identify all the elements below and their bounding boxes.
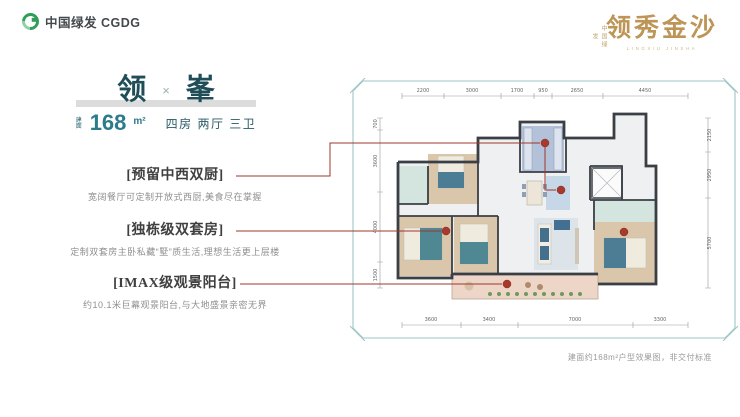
feature-kitchen-title: [预留中西双厨] xyxy=(30,168,320,183)
dim-label: 3000 xyxy=(466,88,479,94)
bed-blanket xyxy=(460,242,488,264)
dim-label: 1700 xyxy=(511,88,524,94)
bed-blanket xyxy=(420,228,442,260)
feature-kitchen-desc: 宽阔餐厅可定制开放式西厨,美食尽在掌握 xyxy=(30,190,320,203)
feature-balcony: [IMAX级观景阳台] 约10.1米巨幕观景阳台,与大地盛景亲密无界 xyxy=(30,276,320,311)
feature-balcony-title: [IMAX级观景阳台] xyxy=(30,276,320,291)
bed-blanket xyxy=(438,172,464,188)
dim-label: 4000 xyxy=(373,221,379,234)
cgdg-logo-icon xyxy=(19,10,43,34)
developer-logo-text: 中国绿发 CGDG xyxy=(45,12,140,31)
dim-label: 2200 xyxy=(417,88,430,94)
dim-label: 1500 xyxy=(373,269,379,282)
tv-console xyxy=(575,228,579,264)
feature-suites-desc: 定制双套房主卧私藏“墅”质生活,理想生活更上层楼 xyxy=(30,245,320,258)
dim-label: 3600 xyxy=(373,155,379,168)
lounge-chair xyxy=(554,220,570,230)
dim-label: 2650 xyxy=(571,88,584,94)
room-config: 四房 两厅 三卫 xyxy=(166,115,257,132)
dim-label: 5700 xyxy=(707,237,713,250)
area-unit: m² xyxy=(133,116,145,127)
page: { "header": { "logo_text": "中国绿发 CGDG", … xyxy=(0,0,740,417)
dim-label: 2150 xyxy=(707,129,713,142)
bathroom-topleft xyxy=(398,166,428,204)
feature-suites: [独栋级双套房] 定制双套房主卧私藏“墅”质生活,理想生活更上层楼 xyxy=(30,223,320,258)
bed-blanket xyxy=(604,238,626,268)
feature-suites-title: [独栋级双套房] xyxy=(30,223,320,238)
dim-label: 4450 xyxy=(639,88,652,94)
unit-title: 领 × 峯 xyxy=(56,76,276,105)
dining-table xyxy=(527,181,542,205)
kitchen-counter xyxy=(554,128,562,170)
floor-plan: 2200 3000 1700 950 2650 4450 3600 3400 7… xyxy=(350,78,738,341)
unit-title-right: 峯 xyxy=(186,76,215,105)
dim-label: 2950 xyxy=(707,169,713,182)
unit-title-separator: × xyxy=(162,83,170,98)
developer-logo: 中国绿发 CGDG xyxy=(22,12,140,31)
dim-label: 7000 xyxy=(569,317,582,323)
dim-label: 3600 xyxy=(425,317,438,323)
dim-label: 700 xyxy=(373,119,379,129)
dim-label: 950 xyxy=(538,88,548,94)
dim-label: 3300 xyxy=(654,317,667,323)
dining-rug xyxy=(546,176,570,210)
unit-title-left: 领 xyxy=(117,76,146,105)
feature-balcony-desc: 约10.1米巨幕观景阳台,与大地盛景亲密无界 xyxy=(30,298,320,311)
feature-kitchen: [预留中西双厨] 宽阔餐厅可定制开放式西厨,美食尽在掌握 xyxy=(30,168,320,203)
area-value: 168 xyxy=(90,112,127,134)
kitchen-counter xyxy=(524,128,532,170)
disclaimer-text: 建面约168m²户型效果图，非交付标准 xyxy=(568,352,712,363)
unit-spec-row: 建面 168 m² 四房 两厅 三卫 xyxy=(46,112,286,134)
balcony-table xyxy=(465,282,474,291)
area-label: 建面 xyxy=(76,118,84,131)
brand-subtitle: LINGXIU JINSHA xyxy=(592,46,732,51)
dim-label: 3400 xyxy=(483,317,496,323)
brand-vertical-text: 中国绿发 xyxy=(590,22,608,51)
brand-name: 领秀金沙 xyxy=(592,8,732,44)
project-brand: 中国绿发 领秀金沙 LINGXIU JINSHA xyxy=(592,8,732,51)
suite-bathroom xyxy=(594,200,656,222)
